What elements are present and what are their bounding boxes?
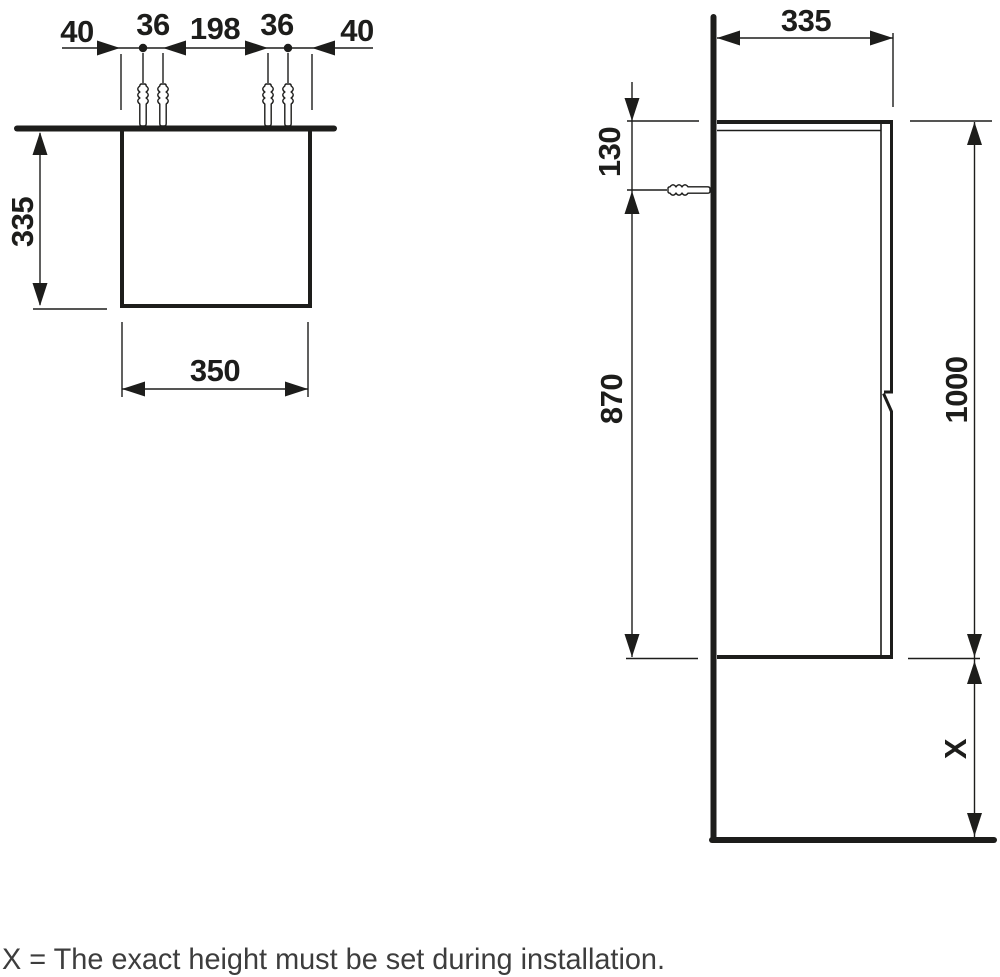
wall-plug-icon [263,84,273,126]
plan-width-label: 350 [190,353,240,388]
installation-note: X = The exact height must be set during … [2,943,665,976]
arrowhead-icon [967,634,982,657]
arrowhead-icon [122,382,145,397]
arrowhead-icon [625,191,640,214]
dim-edge-right-label: 40 [340,13,373,48]
arrowhead-icon [967,661,982,684]
arrowhead-icon [33,283,48,306]
side-depth-label: 335 [781,3,831,38]
arrowhead-icon [163,41,186,56]
arrowhead-icon [625,98,640,121]
floor-clearance-label: X [938,738,973,759]
plan-depth-label: 335 [5,197,40,247]
wall-plug-icon [138,84,148,126]
cabinet-height-label: 1000 [939,357,974,424]
dimension-dot-icon [284,44,292,52]
dim-plug-pair-right-label: 36 [260,7,294,42]
arrowhead-icon [625,634,640,657]
installation-drawing: 40 36 198 36 40 335 350 [0,0,1000,977]
side-view: 335 130 870 [592,3,994,840]
plan-width-dimension: 350 [122,322,308,397]
arrowhead-icon [33,132,48,155]
dim-edge-left-label: 40 [60,14,93,49]
dim-plug-pair-left-label: 36 [136,7,170,42]
cabinet-outline [122,131,310,306]
side-depth-dimension: 335 [717,3,893,107]
arrowhead-icon [97,41,120,56]
wall-plug-icon [158,84,168,126]
dimension-dot-icon [139,44,147,52]
plan-view: 40 36 198 36 40 335 350 [5,7,374,397]
side-right-dimension-column: 1000 X [908,121,992,837]
fixing-to-bottom-label: 870 [594,374,629,424]
arrowhead-icon [967,813,982,836]
top-to-fixing-label: 130 [592,127,627,177]
arrowhead-icon [245,41,268,56]
arrowhead-icon [967,122,982,145]
dim-between-pairs-label: 198 [190,11,240,46]
cabinet-outline [717,122,893,657]
arrowhead-icon [870,31,893,46]
door-edge-line [884,124,892,392]
arrowhead-icon [717,31,740,46]
arrowhead-icon [285,382,308,397]
wall-plug-icon [283,84,293,126]
arrowhead-icon [312,41,335,56]
drawing-canvas: 40 36 198 36 40 335 350 [0,0,1000,977]
door-handle-notch [884,394,892,656]
wall-plug-icon [668,185,710,195]
plan-top-dimension-chain: 40 36 198 36 40 [60,7,373,110]
side-left-dimension-column: 130 870 [592,82,699,659]
plan-depth-dimension: 335 [5,132,107,309]
